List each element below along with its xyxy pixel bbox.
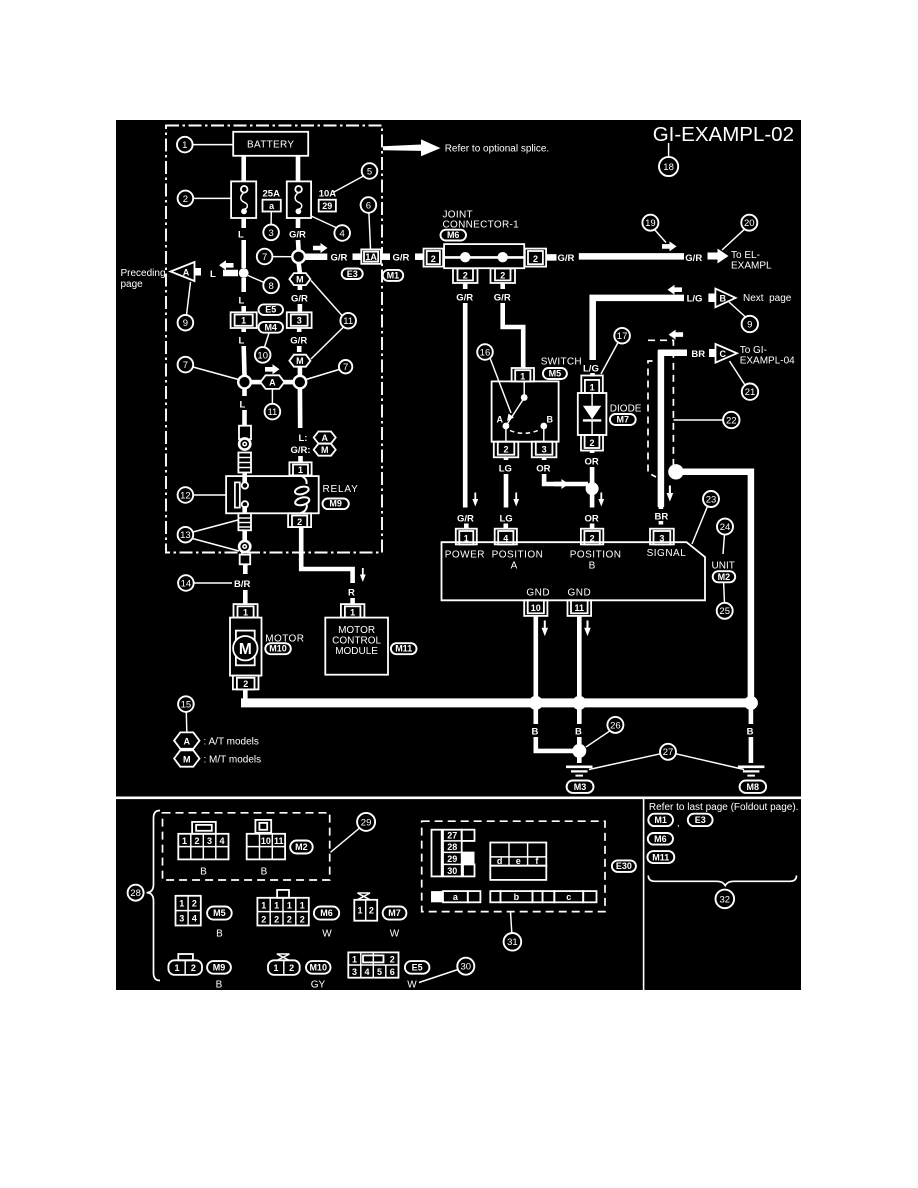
svg-text:2: 2: [589, 438, 594, 448]
svg-text:G/R: G/R: [289, 230, 306, 241]
svg-text:3: 3: [179, 913, 184, 923]
svg-text:13: 13: [180, 530, 191, 541]
svg-text:POSITION: POSITION: [492, 550, 544, 561]
svg-text:27: 27: [663, 747, 674, 758]
svg-text:Next page: Next page: [743, 293, 792, 304]
svg-text:1: 1: [273, 963, 278, 973]
svg-text:28: 28: [130, 888, 141, 899]
svg-text:1: 1: [357, 906, 362, 916]
svg-text:1: 1: [298, 465, 303, 475]
svg-text:M10: M10: [309, 963, 327, 973]
svg-text:B: B: [747, 727, 754, 738]
svg-text:6: 6: [366, 200, 371, 211]
svg-text:B: B: [216, 929, 223, 940]
svg-text:M1: M1: [387, 270, 400, 280]
svg-text:BR: BR: [691, 349, 705, 360]
svg-text:page: page: [121, 279, 144, 290]
svg-text:1: 1: [352, 955, 357, 965]
svg-text:19: 19: [645, 218, 656, 229]
svg-text:2: 2: [183, 194, 188, 205]
svg-text:G/R: G/R: [558, 253, 575, 264]
svg-text:4: 4: [364, 967, 369, 977]
svg-text:1: 1: [274, 901, 279, 911]
svg-text:L: L: [239, 296, 245, 307]
svg-text:3: 3: [352, 967, 357, 977]
svg-text:M9: M9: [213, 963, 226, 973]
svg-text:7: 7: [183, 360, 188, 371]
svg-text:20: 20: [744, 218, 755, 229]
svg-text:1: 1: [300, 901, 305, 911]
svg-text:31: 31: [507, 937, 518, 948]
svg-text:M: M: [183, 754, 191, 764]
svg-text:B: B: [532, 727, 539, 738]
svg-text:M1: M1: [654, 815, 667, 825]
svg-text:M6: M6: [447, 230, 460, 240]
svg-text:L: L: [210, 269, 216, 280]
svg-text:b: b: [514, 892, 520, 902]
svg-text:G/R: G/R: [393, 253, 410, 264]
svg-text:1: 1: [287, 901, 292, 911]
svg-text:EXAMPL-04: EXAMPL-04: [740, 355, 795, 366]
svg-text:21: 21: [745, 387, 756, 398]
svg-text:M2: M2: [295, 842, 308, 852]
svg-text:e: e: [516, 856, 521, 866]
svg-text:15: 15: [181, 700, 192, 711]
svg-text:M: M: [239, 641, 252, 658]
svg-text:1: 1: [174, 963, 179, 973]
svg-text:2: 2: [463, 271, 468, 281]
svg-text:30: 30: [447, 866, 457, 876]
svg-text:29: 29: [447, 854, 457, 864]
svg-text:L: L: [240, 400, 246, 411]
svg-text:UNIT: UNIT: [712, 561, 735, 572]
svg-text:LG: LG: [500, 514, 513, 525]
svg-text:M11: M11: [395, 644, 412, 654]
svg-text:OR: OR: [536, 463, 550, 474]
svg-text:1: 1: [182, 140, 187, 151]
svg-text:L: L: [239, 336, 245, 347]
svg-text:2: 2: [191, 963, 196, 973]
svg-text:B: B: [547, 415, 554, 425]
svg-text:A: A: [511, 561, 518, 572]
svg-text:M4: M4: [264, 322, 277, 332]
svg-text:2: 2: [431, 254, 436, 264]
svg-text:M5: M5: [549, 369, 562, 379]
svg-text:M9: M9: [329, 499, 342, 509]
svg-text:MOTOR: MOTOR: [338, 625, 375, 636]
svg-text:M: M: [321, 445, 329, 455]
svg-text:POWER: POWER: [445, 550, 485, 561]
svg-text:2: 2: [243, 679, 248, 689]
svg-text:11: 11: [267, 407, 277, 418]
svg-text:32: 32: [720, 894, 731, 905]
svg-text:2: 2: [297, 517, 302, 527]
svg-text:R: R: [348, 588, 355, 599]
svg-text:M11: M11: [652, 852, 669, 862]
svg-text:SIGNAL: SIGNAL: [647, 548, 687, 559]
svg-text:9: 9: [747, 319, 752, 330]
svg-text:A: A: [321, 433, 328, 443]
svg-text:G/R: G/R: [685, 253, 702, 264]
svg-text:c: c: [566, 892, 571, 902]
svg-text:1: 1: [350, 607, 355, 617]
svg-text:11: 11: [575, 603, 585, 613]
svg-text:2: 2: [287, 914, 292, 924]
svg-text:28: 28: [447, 842, 457, 852]
svg-text:BATTERY: BATTERY: [247, 139, 294, 150]
svg-text:2: 2: [369, 906, 374, 916]
svg-text:M8: M8: [747, 782, 760, 792]
svg-text:To EL-: To EL-: [731, 250, 760, 261]
svg-text:1: 1: [261, 901, 266, 911]
svg-text:M7: M7: [388, 908, 401, 918]
svg-text:1: 1: [179, 899, 184, 909]
svg-text:10: 10: [531, 603, 541, 613]
svg-text:29: 29: [322, 201, 332, 211]
svg-text:16: 16: [480, 347, 491, 358]
svg-text:10A: 10A: [319, 189, 337, 200]
svg-text:OR: OR: [585, 456, 599, 467]
svg-text:1: 1: [182, 836, 187, 846]
svg-text:E30: E30: [616, 861, 632, 871]
svg-text:26: 26: [610, 720, 621, 731]
svg-text:G/R:: G/R:: [291, 445, 311, 456]
svg-text:GND: GND: [526, 588, 550, 599]
svg-text:17: 17: [617, 331, 628, 342]
svg-text:23: 23: [706, 494, 717, 505]
svg-text:14: 14: [181, 578, 192, 589]
svg-text:B: B: [216, 980, 223, 991]
svg-text:M: M: [296, 356, 304, 366]
svg-text:M7: M7: [617, 415, 630, 425]
svg-text:22: 22: [726, 415, 737, 426]
svg-text:B: B: [261, 867, 268, 878]
svg-text:2: 2: [289, 963, 294, 973]
svg-text:M: M: [296, 275, 304, 285]
svg-text:L/G: L/G: [687, 294, 703, 305]
svg-text:25A: 25A: [263, 189, 281, 200]
svg-text:B: B: [200, 867, 207, 878]
svg-text:18: 18: [663, 162, 674, 173]
svg-text:L:: L:: [299, 433, 308, 444]
svg-text:2: 2: [300, 914, 305, 924]
svg-text:2: 2: [533, 254, 538, 264]
svg-text:GY: GY: [311, 980, 326, 991]
svg-text:11: 11: [343, 316, 353, 327]
svg-text:L: L: [238, 230, 244, 241]
svg-text:7: 7: [262, 252, 267, 263]
svg-text:5: 5: [367, 166, 372, 177]
svg-text:SWITCH: SWITCH: [541, 357, 582, 368]
svg-text:9: 9: [183, 318, 188, 329]
svg-text:d: d: [497, 856, 503, 866]
svg-text:3: 3: [268, 228, 273, 239]
svg-text:2: 2: [500, 271, 505, 281]
svg-text:: M/T models: : M/T models: [204, 755, 262, 766]
svg-text:2: 2: [274, 914, 279, 924]
svg-text:2: 2: [503, 445, 508, 455]
svg-text:LG: LG: [499, 463, 512, 474]
svg-text:CONTROL: CONTROL: [332, 636, 381, 647]
svg-text:MODULE: MODULE: [335, 646, 378, 657]
svg-text:A: A: [269, 378, 276, 388]
svg-text:OR: OR: [585, 514, 599, 525]
svg-text:G/R: G/R: [494, 293, 511, 304]
svg-text:B: B: [575, 727, 582, 738]
svg-text:3: 3: [207, 836, 212, 846]
svg-text:2: 2: [192, 899, 197, 909]
svg-text:M2: M2: [718, 572, 731, 582]
svg-text:POSITION: POSITION: [570, 550, 622, 561]
svg-text:M3: M3: [574, 782, 587, 792]
svg-text:1A: 1A: [365, 252, 377, 262]
svg-text:A: A: [184, 736, 191, 746]
svg-text:3: 3: [297, 316, 302, 326]
svg-text:To GI-: To GI-: [740, 345, 767, 356]
svg-text:B/R: B/R: [234, 579, 251, 590]
svg-text:BR: BR: [655, 512, 669, 523]
svg-text:G/R: G/R: [291, 294, 308, 305]
svg-text:EXAMPL: EXAMPL: [731, 260, 772, 271]
svg-text:GI-EXAMPL-02: GI-EXAMPL-02: [653, 123, 794, 146]
svg-text:E3: E3: [695, 815, 706, 825]
svg-text:5: 5: [377, 967, 382, 977]
svg-text:A: A: [497, 415, 504, 425]
svg-text:G/R: G/R: [290, 336, 307, 347]
svg-text:W: W: [322, 929, 332, 940]
svg-text:E5: E5: [412, 963, 423, 973]
svg-text:27: 27: [447, 831, 457, 841]
svg-text:M6: M6: [654, 834, 667, 844]
svg-text:1: 1: [520, 371, 525, 381]
svg-text:W: W: [407, 980, 417, 991]
svg-text:W: W: [390, 929, 400, 940]
svg-text:E3: E3: [347, 269, 358, 279]
svg-text:2: 2: [390, 955, 395, 965]
svg-text:B: B: [589, 561, 596, 572]
svg-text:M5: M5: [213, 908, 226, 918]
svg-text:G/R: G/R: [457, 514, 474, 525]
svg-text:2: 2: [261, 914, 266, 924]
svg-text:G/R: G/R: [331, 253, 348, 264]
svg-text:6: 6: [390, 967, 395, 977]
svg-text:M10: M10: [269, 644, 287, 654]
svg-text:L/G: L/G: [583, 364, 599, 375]
svg-text:11: 11: [274, 836, 284, 846]
svg-text:1: 1: [243, 607, 248, 617]
svg-text:10: 10: [261, 836, 271, 846]
svg-text:1: 1: [590, 383, 595, 393]
svg-text:30: 30: [461, 962, 472, 973]
svg-text:Refer to last page (Foldout pa: Refer to last page (Foldout page).: [649, 802, 799, 813]
svg-text:24: 24: [720, 522, 731, 533]
svg-text:: A/T models: : A/T models: [204, 737, 259, 748]
svg-text:M6: M6: [320, 908, 333, 918]
svg-text:10: 10: [257, 350, 268, 361]
svg-text:8: 8: [268, 281, 273, 292]
svg-text:12: 12: [180, 490, 191, 501]
svg-text:A: A: [183, 267, 190, 277]
svg-text:C: C: [720, 349, 727, 359]
svg-text:Preceding: Preceding: [121, 268, 166, 279]
svg-text:4: 4: [219, 836, 224, 846]
svg-text:RELAY: RELAY: [323, 484, 359, 495]
svg-text:4: 4: [192, 913, 197, 923]
svg-text:DIODE: DIODE: [610, 404, 642, 415]
svg-text:29: 29: [361, 817, 372, 828]
svg-text:G/R: G/R: [456, 293, 473, 304]
svg-text:Refer to optional splice.: Refer to optional splice.: [445, 144, 550, 155]
svg-text:B: B: [720, 293, 727, 303]
svg-text:4: 4: [340, 228, 345, 239]
svg-text:1: 1: [241, 316, 246, 326]
svg-text:7: 7: [343, 362, 348, 373]
svg-text:GND: GND: [568, 588, 592, 599]
svg-text:3: 3: [542, 445, 547, 455]
svg-text:E5: E5: [265, 305, 276, 315]
svg-text:2: 2: [194, 836, 199, 846]
svg-text:25: 25: [719, 606, 730, 617]
svg-text:,: ,: [677, 818, 680, 829]
